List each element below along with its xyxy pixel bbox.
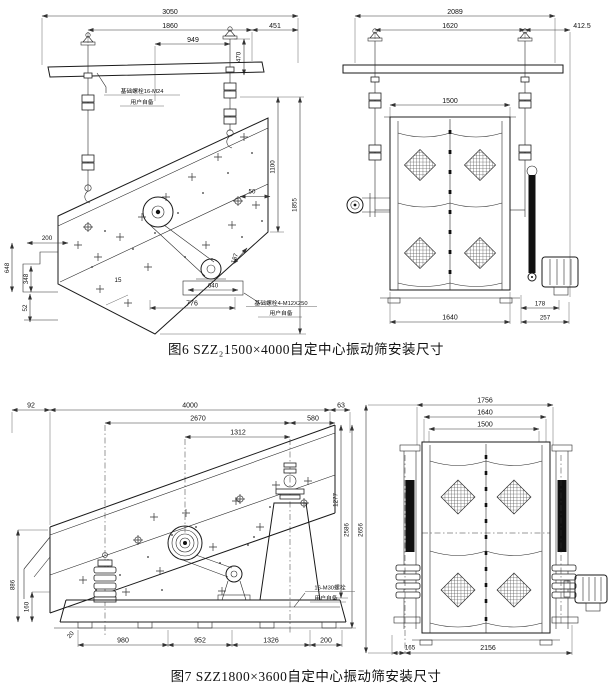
rivet-dots [91,152,263,268]
fig7-end-left-height-dimension: 2656 [358,405,392,653]
fig7-side-drive-assembly [168,526,250,600]
dim-1326: 1326 [263,638,279,645]
dim-1855: 1855 [292,198,299,212]
fig7-side-view-drawing: 92 4000 63 2670 580 1312 1277 2586 [8,385,358,660]
dim-1277: 1277 [332,493,339,507]
dim-1860: 1860 [162,23,178,30]
dim-15: 15 [115,277,122,284]
fig6-side-left-hanger-rod [81,33,95,203]
note-foundation-bolt-bottom: 基础螺栓4-M12X250 [254,299,307,307]
dim-776: 776 [186,301,198,308]
dim-1312: 1312 [230,430,246,437]
fig7-end-left-support-column [394,445,420,655]
dim-1620: 1620 [442,23,458,30]
installation-dimension-drawing-page: 3050 1860 451 949 470 基础 [0,0,612,687]
dim-640: 640 [208,283,219,290]
dim-3050: 3050 [162,9,178,16]
fig7-end-right-support-column [552,445,578,629]
fig6-side-drive-assembly: 640 [143,197,243,295]
dim-1100: 1100 [270,160,277,174]
fig6-side-view-drawing: 3050 1860 451 949 470 基础 [0,5,318,338]
dim-20: 20 [66,630,76,640]
fig7-side-screen-body [24,425,335,613]
fig6-side-discharge-chute: 200 648 348 52 15 [4,235,128,322]
dim-2656: 2656 [358,523,365,537]
dim-1640: 1640 [442,315,458,322]
dim-2089: 2089 [447,9,463,16]
dim-160: 160 [24,601,31,612]
fig7-side-bolt-note: 16-M30螺栓 用户自备 [294,584,355,608]
fig7-side-bottom-dimens​ions: 980 952 1326 200 [78,630,342,647]
dim-412-5: 412.5 [573,23,591,30]
dim-257: 257 [540,315,551,322]
dim-2670: 2670 [190,416,206,423]
note-user-supplied-bottom: 用户自备 [269,309,292,317]
fig6-end-mounting-beam [343,65,563,73]
dim-348: 348 [23,273,30,284]
dim-952: 952 [194,638,206,645]
fig6-end-screen-box: 1500 [380,98,520,303]
dim-1640b: 1640 [477,410,493,417]
fig7-side-base-frame [54,600,352,628]
dim-1756: 1756 [477,398,493,405]
fig7-end-view-drawing: 1756 1640 1500 2656 [358,385,612,660]
dim-451: 451 [269,23,281,30]
dim-200: 200 [42,235,53,242]
rivet-dots [95,490,295,591]
fig7-side-left-dimensions: 886 160 20 [10,530,77,640]
dim-949: 949 [187,37,199,44]
note-user-supplied-top: 用户自备 [130,98,153,106]
dim-886: 886 [10,579,17,590]
fig7-caption: 图7 SZZ1800×3600自定中心振动筛安装尺寸 [0,665,612,685]
fig6-end-view-drawing: 2089 1620 412.5 1500 [318,5,612,338]
fig6-end-left-hanger-rod [368,29,390,217]
dim-1500: 1500 [442,98,458,105]
dim-580: 580 [307,416,319,423]
note-user-supplied: 用户自备 [314,594,337,602]
dim-52: 52 [22,304,29,311]
dim-200b: 200 [320,638,332,645]
fig6-end-belt-and-motor [527,166,578,295]
fig7-end-top-dimensions: 1756 1640 1500 [368,398,553,445]
dim-4000: 4000 [182,403,198,410]
fig7-side-left-spring-support [94,553,116,603]
dim-63: 63 [337,403,345,410]
fig6-side-right-hanger-rod [223,27,237,148]
dim-648: 648 [4,262,11,273]
fig6-end-shaft-flange [347,193,390,217]
fig6-caption: 图6 SZZ₂1500×4000自定中心振动筛安装尺寸 [0,338,612,358]
dim-980: 980 [117,638,129,645]
fig6-side-top-dimensions: 3050 1860 451 949 470 [42,9,298,101]
bolt-cross-symbols [133,494,309,545]
dim-92: 92 [27,403,35,410]
fig6-end-bottom-dimensions: 178 257 1640 [390,292,569,324]
note-m30-bolt: 16-M30螺栓 [314,584,345,592]
fig7-end-screen-box [412,442,560,645]
dim-50: 50 [249,188,256,195]
dim-2586: 2586 [344,523,351,537]
dim-470: 470 [236,51,243,62]
dim-187: 187 [230,252,240,265]
dim-165: 165 [405,644,416,651]
note-foundation-bolt-top: 基础螺栓16-M24 [121,87,165,95]
fig6-side-foundation-bolt-note-top: 基础螺栓16-M24 用户自备 [97,73,180,106]
dim-2156: 2156 [480,645,496,652]
dim-178: 178 [535,301,546,308]
fig6-side-foundation-bolt-note-bottom: 基础螺栓4-M12X250 用户自备 [244,293,317,317]
dim-1500b: 1500 [477,422,493,429]
